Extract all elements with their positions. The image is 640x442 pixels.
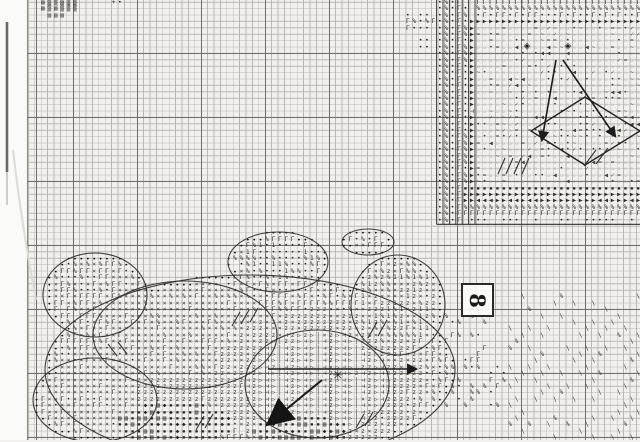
stitch-symbol: \ bbox=[545, 422, 551, 428]
stitch-symbol: \ bbox=[597, 390, 603, 396]
stitch-symbol: \ bbox=[590, 378, 596, 384]
stitch-symbol: • bbox=[347, 230, 353, 236]
stitch-symbol: \ bbox=[552, 435, 558, 441]
stitch-symbol: % bbox=[565, 422, 571, 428]
stitch-symbol: \ bbox=[577, 333, 583, 339]
stitch-symbol: ▪ bbox=[193, 435, 199, 441]
stitch-symbol: \ bbox=[577, 371, 583, 377]
stitch-symbol: \ bbox=[552, 301, 558, 307]
stitch-symbol: • bbox=[437, 320, 443, 326]
stitch-symbol: Γ bbox=[97, 397, 103, 403]
stitch-symbol: \ bbox=[635, 371, 640, 377]
stitch-symbol: • bbox=[513, 218, 519, 224]
stitch-symbol: \ bbox=[565, 346, 571, 352]
stitch-symbol: • bbox=[264, 230, 270, 236]
stitch-symbol: ⊣ bbox=[360, 416, 366, 422]
stitch-symbol: % bbox=[475, 365, 481, 371]
stitch-symbol: • bbox=[565, 218, 571, 224]
stitch-symbol: \ bbox=[609, 416, 615, 422]
stitch-symbol: \ bbox=[635, 294, 640, 300]
stitch-symbol: \ bbox=[577, 352, 583, 358]
stitch-symbol: \ bbox=[603, 326, 609, 332]
stitch-symbol: \ bbox=[590, 397, 596, 403]
stitch-symbol: × bbox=[110, 378, 116, 384]
stitch-symbol: \ bbox=[520, 429, 526, 435]
stitch-symbol: \ bbox=[616, 390, 622, 396]
stitch-symbol: \ bbox=[577, 429, 583, 435]
stitch-symbol: • bbox=[417, 416, 423, 422]
stitch-symbol: \ bbox=[545, 326, 551, 332]
stitch-symbol: % bbox=[475, 390, 481, 396]
stitch-symbol: \ bbox=[571, 397, 577, 403]
stitch-symbol: × bbox=[97, 352, 103, 358]
stitch-symbol: z bbox=[366, 378, 372, 384]
stitch-symbol: \ bbox=[513, 397, 519, 403]
stitch-symbol: z bbox=[328, 320, 334, 326]
stitch-symbol: • bbox=[424, 45, 430, 51]
stitch-symbol: \ bbox=[507, 326, 513, 332]
stitch-symbol: ⊣ bbox=[341, 403, 347, 409]
stitch-symbol: % bbox=[417, 301, 423, 307]
stitch-symbol: • bbox=[533, 218, 539, 224]
stitch-symbol: % bbox=[558, 294, 564, 300]
stitch-symbol: \ bbox=[622, 346, 628, 352]
stitch-symbol: × bbox=[187, 352, 193, 358]
page-number: 8 bbox=[467, 293, 488, 308]
stitch-symbol: \ bbox=[533, 378, 539, 384]
stitch-symbol: • bbox=[405, 256, 411, 262]
stitch-symbol: % bbox=[513, 339, 519, 345]
stitch-symbol: % bbox=[443, 403, 449, 409]
stitch-symbol: \ bbox=[603, 307, 609, 313]
stitch-symbol: \ bbox=[539, 333, 545, 339]
stitch-symbol: Γ bbox=[200, 339, 206, 345]
stitch-symbol: Γ bbox=[443, 339, 449, 345]
stitch-symbol: \ bbox=[584, 365, 590, 371]
stitch-symbol: \ bbox=[513, 378, 519, 384]
stitch-symbol: z bbox=[398, 390, 404, 396]
stitch-symbol: × bbox=[219, 320, 225, 326]
stitch-symbol: z bbox=[360, 435, 366, 441]
stitch-symbol: \ bbox=[507, 403, 513, 409]
stitch-symbol: % bbox=[469, 397, 475, 403]
stitch-symbol: % bbox=[558, 390, 564, 396]
stitch-symbol: \ bbox=[590, 320, 596, 326]
stitch-symbol: \ bbox=[616, 429, 622, 435]
stitch-symbol: \ bbox=[616, 314, 622, 320]
stitch-symbol: ▒ bbox=[72, 6, 78, 12]
stitch-symbol: % bbox=[507, 422, 513, 428]
stitch-symbol: Γ bbox=[635, 211, 640, 217]
stitch-symbol: Γ bbox=[456, 218, 462, 224]
stitch-symbol: \ bbox=[622, 384, 628, 390]
stitch-symbol: % bbox=[597, 352, 603, 358]
stitch-symbol: \ bbox=[609, 435, 615, 441]
stitch-symbol: % bbox=[616, 333, 622, 339]
stitch-symbol: × bbox=[398, 422, 404, 428]
stitch-symbol: \ bbox=[513, 416, 519, 422]
stitch-symbol: \ bbox=[622, 326, 628, 332]
stitch-symbol: \ bbox=[584, 384, 590, 390]
stitch-symbol: \ bbox=[584, 326, 590, 332]
stitch-symbol: \ bbox=[635, 333, 640, 339]
stitch-symbol: • bbox=[398, 429, 404, 435]
stitch-symbol: • bbox=[629, 218, 635, 224]
stitch-symbol: • bbox=[117, 256, 123, 262]
stitch-symbol: Γ bbox=[78, 397, 84, 403]
stitch-symbol: \ bbox=[622, 365, 628, 371]
stitch-symbol: % bbox=[622, 422, 628, 428]
stitch-symbol: % bbox=[597, 371, 603, 377]
stitch-symbol: × bbox=[193, 307, 199, 313]
stitch-symbol: z bbox=[366, 352, 372, 358]
stitch-symbol: \ bbox=[629, 416, 635, 422]
stitch-symbol: \ bbox=[571, 358, 577, 364]
stitch-symbol: ▨ bbox=[328, 435, 334, 441]
stitch-symbol: \ bbox=[609, 320, 615, 326]
stitch-symbol: \ bbox=[552, 397, 558, 403]
stitch-symbol: % bbox=[456, 333, 462, 339]
stitch-symbol: \ bbox=[533, 358, 539, 364]
stitch-symbol: • bbox=[430, 403, 436, 409]
stitch-symbol: \ bbox=[507, 384, 513, 390]
stitch-symbol: z bbox=[430, 301, 436, 307]
stitch-symbol: • bbox=[456, 384, 462, 390]
stitch-symbol: \ bbox=[590, 416, 596, 422]
stitch-symbol: • bbox=[424, 410, 430, 416]
stitch-symbol: % bbox=[629, 358, 635, 364]
stitch-symbol: ▨ bbox=[193, 410, 199, 416]
stitch-symbol: \ bbox=[520, 371, 526, 377]
stitch-symbol: • bbox=[475, 333, 481, 339]
stitch-symbol: \ bbox=[565, 384, 571, 390]
stitch-symbol: × bbox=[149, 320, 155, 326]
stitch-symbol: ▷ bbox=[270, 346, 276, 352]
stitch-symbol: % bbox=[213, 294, 219, 300]
stitch-symbol: % bbox=[629, 378, 635, 384]
scanned-chart-page: ••••••••••••%ΓΓΓΓ••••Γ•%•Γ••Γ%1•1••••Γ••… bbox=[0, 0, 640, 440]
stitch-symbol: \ bbox=[520, 410, 526, 416]
stitch-cells-layer: ••••••••••••%ΓΓΓΓ••••Γ•%•Γ••Γ%1•1••••Γ••… bbox=[0, 0, 640, 440]
stitch-symbol: \ bbox=[590, 358, 596, 364]
stitch-symbol: % bbox=[526, 307, 532, 313]
stitch-symbol: Γ bbox=[494, 384, 500, 390]
stitch-symbol: Γ bbox=[430, 19, 436, 25]
stitch-symbol: \ bbox=[635, 352, 640, 358]
stitch-symbol: % bbox=[481, 320, 487, 326]
stitch-symbol: z bbox=[238, 390, 244, 396]
stitch-symbol: × bbox=[373, 288, 379, 294]
stitch-symbol: \ bbox=[597, 333, 603, 339]
stitch-symbol: % bbox=[526, 422, 532, 428]
stitch-symbol: • bbox=[449, 358, 455, 364]
stitch-symbol: Γ bbox=[481, 346, 487, 352]
stitch-symbol: \ bbox=[571, 301, 577, 307]
stitch-symbol: \ bbox=[603, 346, 609, 352]
stitch-symbol: × bbox=[366, 314, 372, 320]
stitch-symbol: z bbox=[289, 403, 295, 409]
stitch-symbol: × bbox=[193, 371, 199, 377]
stitch-symbol: \ bbox=[590, 435, 596, 441]
stitch-symbol: \ bbox=[622, 403, 628, 409]
stitch-symbol: \ bbox=[526, 365, 532, 371]
stitch-symbol: % bbox=[507, 346, 513, 352]
stitch-symbol: z bbox=[149, 384, 155, 390]
stitch-symbol: \ bbox=[616, 410, 622, 416]
stitch-symbol: \ bbox=[539, 314, 545, 320]
stitch-symbol: × bbox=[398, 294, 404, 300]
stitch-symbol: \ bbox=[526, 326, 532, 332]
stitch-symbol: \ bbox=[558, 314, 564, 320]
stitch-symbol: \ bbox=[590, 301, 596, 307]
stitch-symbol: \ bbox=[558, 371, 564, 377]
stitch-symbol: • bbox=[609, 218, 615, 224]
stitch-symbol: % bbox=[462, 403, 468, 409]
stitch-symbol: \ bbox=[629, 397, 635, 403]
page-number-box: 8 bbox=[461, 283, 494, 317]
stitch-symbol: \ bbox=[526, 346, 532, 352]
stitch-symbol: ⊣ bbox=[321, 339, 327, 345]
stitch-symbol: • bbox=[411, 422, 417, 428]
stitch-symbol: \ bbox=[507, 365, 513, 371]
stitch-symbol: % bbox=[539, 352, 545, 358]
stitch-symbol: \ bbox=[584, 346, 590, 352]
stitch-symbol: \ bbox=[629, 435, 635, 441]
stitch-symbol: • bbox=[488, 390, 494, 396]
stitch-symbol: % bbox=[552, 416, 558, 422]
stitch-symbol: % bbox=[289, 269, 295, 275]
stitch-symbol: • bbox=[321, 282, 327, 288]
stitch-symbol: \ bbox=[539, 390, 545, 396]
stitch-symbol: • bbox=[117, 0, 123, 6]
stitch-symbol: × bbox=[264, 314, 270, 320]
stitch-symbol: % bbox=[501, 378, 507, 384]
stitch-symbol: \ bbox=[584, 422, 590, 428]
stitch-symbol: • bbox=[385, 243, 391, 249]
stitch-symbol: \ bbox=[520, 333, 526, 339]
stitch-symbol: • bbox=[424, 26, 430, 32]
stitch-symbol: • bbox=[360, 250, 366, 256]
stitch-symbol: \ bbox=[533, 397, 539, 403]
stitch-symbol: • bbox=[481, 218, 487, 224]
stitch-symbol: \ bbox=[635, 410, 640, 416]
stitch-symbol: % bbox=[494, 403, 500, 409]
stitch-symbol: ▨ bbox=[59, 13, 65, 19]
stitch-symbol: \ bbox=[629, 339, 635, 345]
stitch-symbol: \ bbox=[539, 371, 545, 377]
stitch-symbol: • bbox=[321, 269, 327, 275]
stitch-symbol: z bbox=[405, 371, 411, 377]
stitch-symbol: \ bbox=[571, 320, 577, 326]
stitch-symbol: z bbox=[238, 352, 244, 358]
stitch-symbol: • bbox=[385, 435, 391, 441]
stitch-symbol: % bbox=[411, 269, 417, 275]
stitch-symbol: \ bbox=[545, 384, 551, 390]
stitch-symbol: ⊣ bbox=[283, 365, 289, 371]
stitch-symbol: × bbox=[123, 346, 129, 352]
stitch-symbol: \ bbox=[520, 294, 526, 300]
stitch-symbol: \ bbox=[545, 365, 551, 371]
stitch-symbol: % bbox=[456, 320, 462, 326]
